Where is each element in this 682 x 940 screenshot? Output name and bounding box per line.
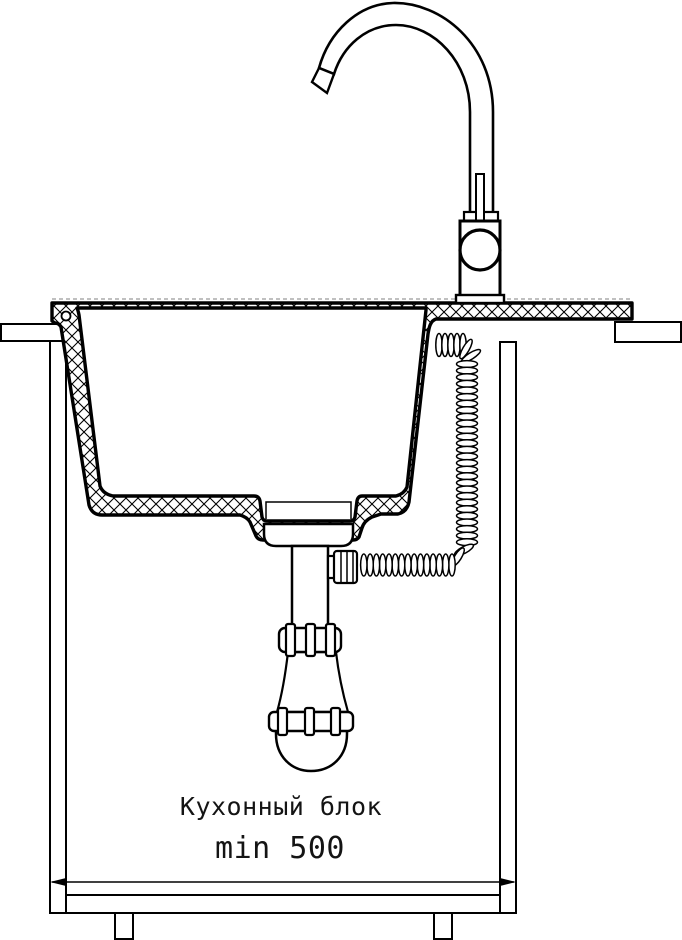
adjacent-counter-right bbox=[615, 322, 681, 342]
trap-upper-nut-rib bbox=[306, 624, 315, 656]
faucet-cartridge-joint bbox=[460, 230, 500, 270]
trap-lower-nut-rib bbox=[331, 708, 340, 735]
technical-diagram: Кухонный блок min 500 bbox=[0, 0, 682, 940]
width-dimension bbox=[50, 878, 516, 886]
faucet-spout-tip bbox=[312, 68, 334, 93]
adjacent-counter-left bbox=[1, 324, 63, 341]
drain-flange bbox=[264, 524, 353, 546]
trap-cup bbox=[277, 652, 348, 712]
faucet-gooseneck-spout bbox=[319, 3, 493, 213]
cabinet-right-leg bbox=[434, 913, 452, 939]
sink-bowl-section bbox=[52, 303, 632, 540]
faucet-lever-rod bbox=[476, 174, 484, 224]
trap-lower-nut-rib bbox=[278, 708, 287, 735]
trap-upper-nut-rib bbox=[326, 624, 335, 656]
min-width-label: min 500 bbox=[215, 831, 345, 866]
cabinet-label: Кухонный блок bbox=[180, 792, 382, 821]
trap-upper-nut-rib bbox=[286, 624, 295, 656]
faucet-base-plate bbox=[456, 295, 504, 303]
labels: Кухонный блок min 500 bbox=[180, 792, 382, 866]
cabinet-left-leg bbox=[115, 913, 133, 939]
cabinet-right-wall bbox=[500, 342, 516, 913]
sink-rim-profile-notch bbox=[62, 312, 71, 321]
sink-and-countertop bbox=[52, 303, 632, 540]
cabinet-bottom-panel bbox=[66, 895, 500, 913]
faucet bbox=[312, 3, 504, 303]
cabinet-left-wall bbox=[50, 341, 66, 913]
drain-siphon-assembly bbox=[264, 524, 357, 771]
trap-lower-nut-rib bbox=[305, 708, 314, 735]
drain-recess-lines bbox=[266, 502, 351, 519]
